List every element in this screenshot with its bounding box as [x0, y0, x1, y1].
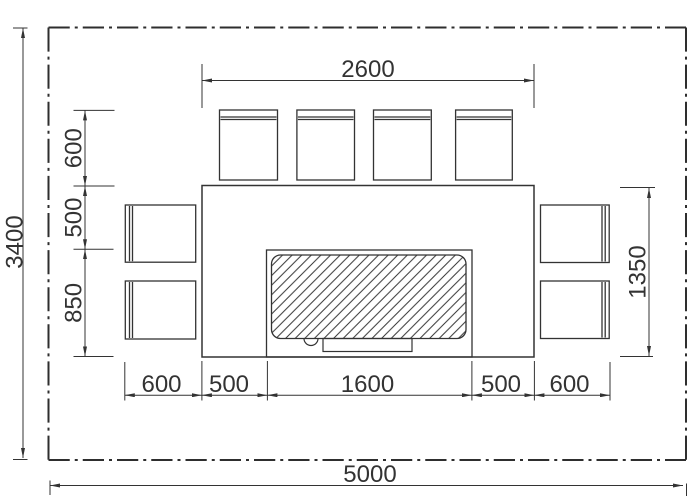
svg-text:2600: 2600	[341, 56, 394, 83]
svg-text:500: 500	[61, 198, 88, 238]
svg-text:500: 500	[481, 371, 521, 398]
svg-text:1350: 1350	[625, 245, 652, 298]
svg-text:850: 850	[61, 283, 88, 323]
svg-text:600: 600	[61, 128, 88, 168]
svg-text:1600: 1600	[341, 371, 394, 398]
svg-text:500: 500	[209, 371, 249, 398]
svg-text:600: 600	[141, 371, 181, 398]
svg-text:600: 600	[549, 371, 589, 398]
svg-text:5000: 5000	[343, 461, 396, 488]
svg-text:3400: 3400	[2, 215, 29, 268]
